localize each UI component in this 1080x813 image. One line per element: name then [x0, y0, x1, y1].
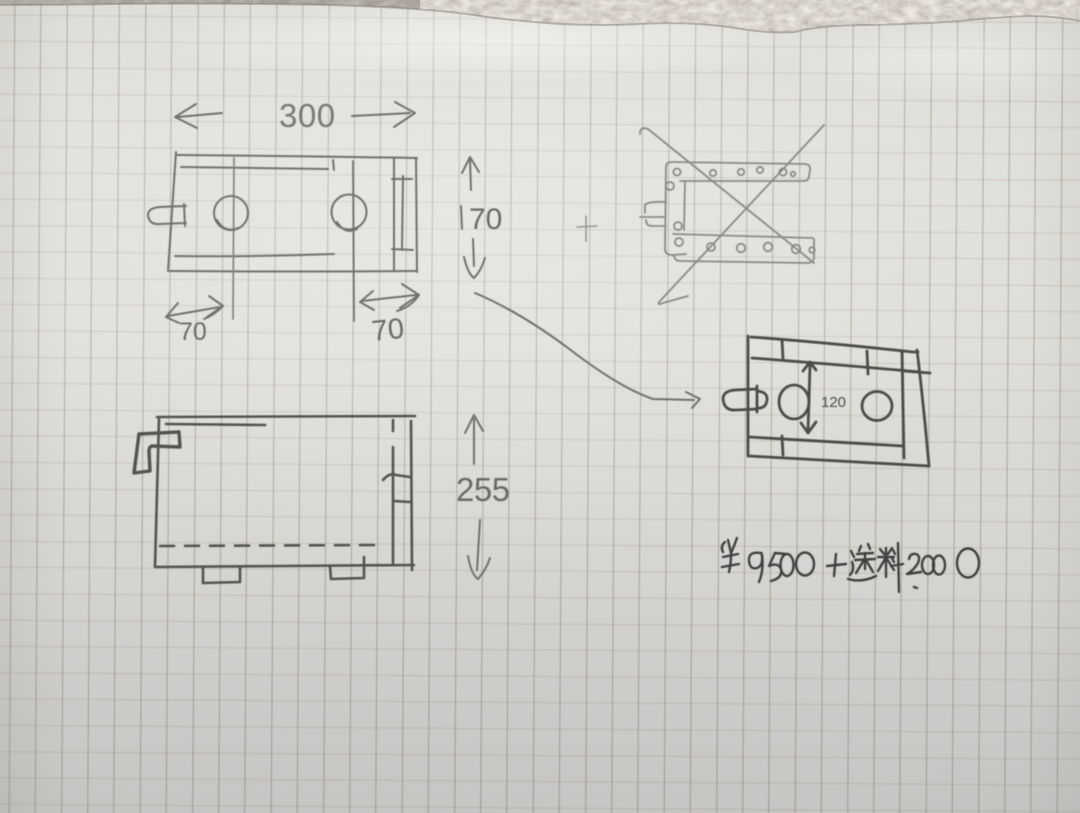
svg-text:70: 70 — [179, 318, 207, 346]
svg-text:70: 70 — [370, 313, 405, 348]
svg-text:120: 120 — [821, 394, 846, 411]
svg-text:70: 70 — [469, 203, 502, 236]
svg-text:300: 300 — [279, 97, 336, 134]
svg-text:255: 255 — [456, 471, 510, 508]
